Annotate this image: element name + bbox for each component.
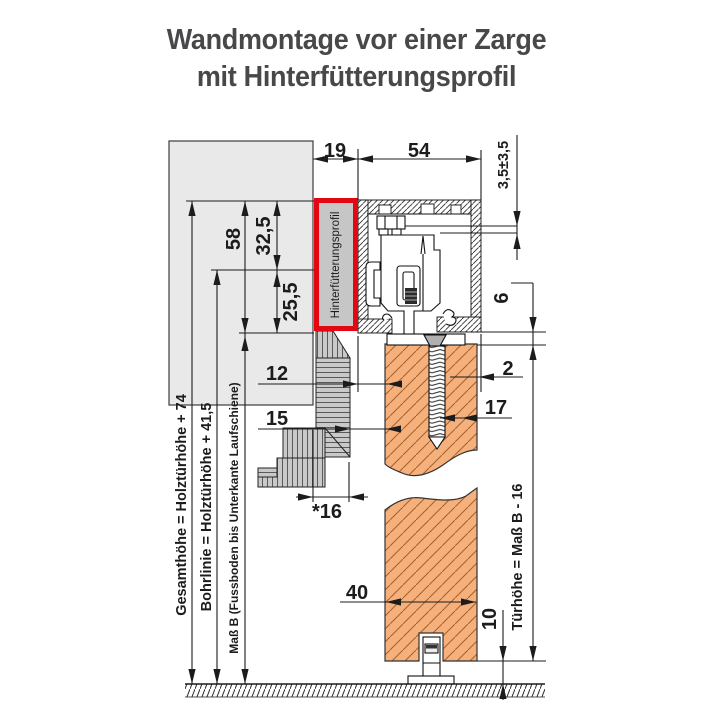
label-bohrlinie: Bohrlinie = Holztürhöhe + 41,5 [199,403,215,612]
dim-40: 40 [346,582,368,604]
dim-15: 15 [266,408,288,430]
dim-6: 6 [491,292,513,303]
dim-2: 2 [502,358,513,380]
dim-32-5: 32,5 [253,217,275,256]
dim-16: *16 [312,501,342,523]
technical-drawing-page: Wandmontage vor einer Zarge mit Hinterfü… [0,0,713,713]
dim-3-5-tolerance: 3,5±3,5 [496,141,512,189]
floor-hatch [185,684,545,697]
track-slot [421,204,434,214]
screw-thread [429,346,445,437]
dim-25-5: 25,5 [280,283,302,322]
installation-diagram: Hinterfütterungsprofil [0,0,713,713]
door-panel-lower [385,488,477,661]
track-slot [379,205,391,214]
dim-19: 19 [324,140,346,162]
hinterfuetterungsprofil-label: Hinterfütterungsprofil [330,212,342,319]
wall-section [169,141,313,405]
roller-carriage [366,214,471,336]
dim-58: 58 [223,228,245,250]
dim-54: 54 [408,140,431,162]
label-tuerhoehe: Türhöhe = Maß B - 16 [510,483,526,630]
dim-10: 10 [479,608,501,630]
label-gesamthoehe: Gesamthöhe = Holztürhöhe + 74 [174,394,190,616]
label-mass-b: Maß B (Fussboden bis Unterkante Laufschi… [227,382,241,653]
dim-17: 17 [485,397,507,419]
dim-12: 12 [266,363,288,385]
track-slot [451,205,461,214]
